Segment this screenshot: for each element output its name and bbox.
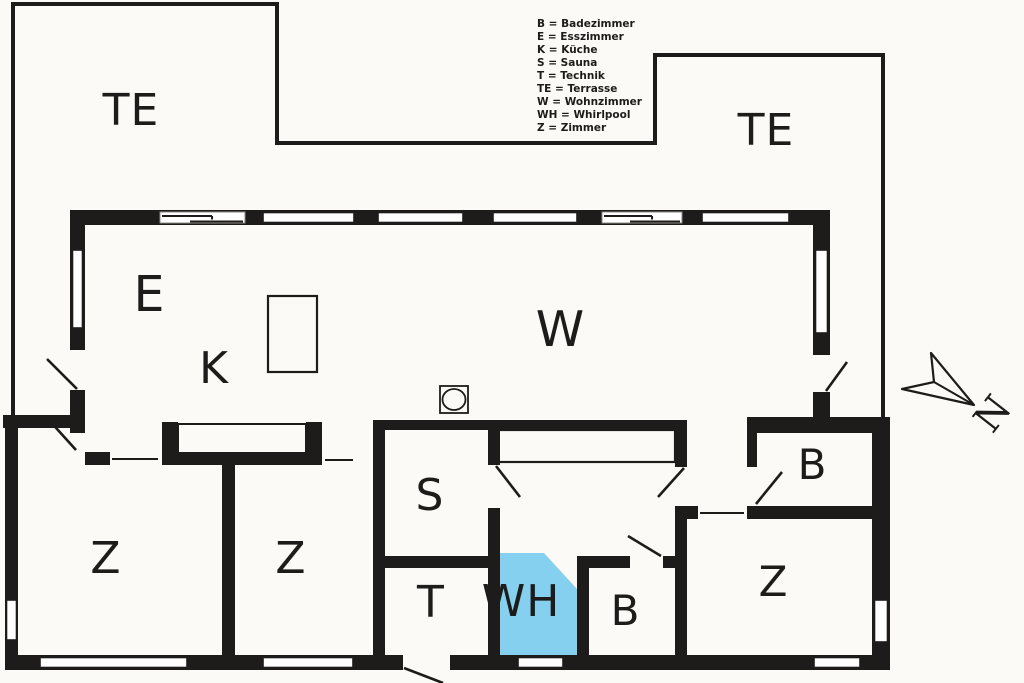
wall-between-bedrooms [222, 463, 235, 670]
window-left-dining [73, 250, 83, 328]
legend-item: E = Esszimmer [537, 31, 625, 43]
wall-bath-left [747, 423, 757, 467]
room-label-bath-right: B [798, 440, 827, 489]
window-top-2 [263, 213, 354, 223]
wall-sauna-bottom [373, 556, 500, 568]
legend-item: W = Wohnzimmer [537, 96, 643, 108]
window-top-4 [493, 213, 577, 223]
wall-sauna-left [373, 420, 385, 657]
room-label-living: W [536, 301, 584, 358]
window-bottom-bedroom-left [40, 658, 187, 668]
wall-z1-top [85, 452, 110, 465]
room-label-technik: T [416, 577, 445, 628]
door-opening-entrance [403, 654, 450, 671]
window-bottom-bedroom-right [814, 658, 860, 668]
door-opening-innerbath [630, 556, 663, 568]
floor-plan: N B = Badezimmer E = Esszimmer K = Küche… [0, 0, 1024, 683]
legend-item: S = Sauna [537, 57, 597, 69]
room-label-dining: E [134, 266, 165, 323]
wall-innerbath-top-b [663, 556, 687, 568]
legend-item: TE = Terrasse [537, 83, 617, 95]
window-west-bedroom [7, 600, 17, 640]
legend-item: WH = Whirlpool [537, 109, 630, 121]
window-bottom-bedroom-mid [263, 658, 353, 668]
room-label-bedroom-left: Z [90, 533, 121, 584]
wall-wing-top-right [747, 417, 890, 433]
door-opening-bath-right [747, 467, 757, 506]
window-right-living [816, 250, 828, 333]
room-label-terrace-right: TE [737, 105, 795, 156]
wall-mid-top [373, 420, 687, 430]
room-label-bedroom-right: Z [759, 557, 788, 606]
wall-innerbath-left [577, 556, 589, 657]
legend-item: T = Technik [537, 70, 606, 82]
door-opening-sauna [488, 465, 500, 508]
room-label-terrace-left: TE [102, 85, 160, 136]
legend-item: K = Küche [537, 44, 598, 56]
room-label-kitchen: K [199, 343, 229, 394]
wall-hall-block [675, 506, 698, 519]
window-top-6 [702, 213, 789, 223]
room-label-bath-inner: B [611, 586, 640, 635]
room-label-bedroom-mid: Z [275, 533, 306, 584]
wall-innerbath-top-a [583, 556, 630, 568]
wardrobe-cap-left [162, 422, 178, 465]
legend-item: Z = Zimmer [537, 122, 607, 134]
wardrobe-base [162, 453, 322, 465]
wall-wh-right-b [675, 508, 687, 657]
window-east-bedroom [875, 600, 888, 642]
room-label-whirlpool: WH [482, 576, 561, 627]
legend-item: B = Badezimmer [537, 18, 636, 30]
wall-wh-right-a [675, 430, 687, 467]
room-label-sauna: S [416, 470, 445, 521]
floor-plan-canvas: N B = Badezimmer E = Esszimmer K = Küche… [0, 0, 1024, 683]
window-bottom-whirlpool [518, 658, 563, 668]
wall-bath-bottom [747, 506, 872, 519]
window-top-3 [378, 213, 463, 223]
wardrobe-cap-right [306, 422, 322, 465]
